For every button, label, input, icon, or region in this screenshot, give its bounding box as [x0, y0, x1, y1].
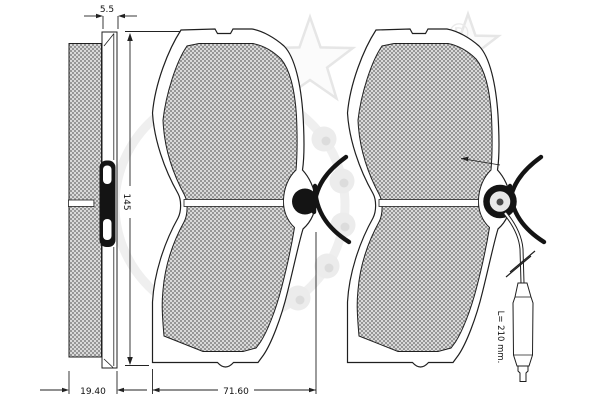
side-friction-groove	[68, 200, 94, 207]
dimension-label-71-60: 71.60	[223, 387, 249, 397]
right-pad-groove	[379, 200, 479, 207]
dimension-label-19-40: 19.40	[80, 387, 106, 397]
dimension-label-5-5: 5.5	[100, 5, 114, 15]
wear-sensor-center	[497, 199, 504, 206]
technical-drawing: ® 145 5.5 19.40 71.60	[0, 0, 600, 400]
pad-side-view	[68, 32, 117, 368]
sensor-wire-length-label: L= 210 mm.	[495, 311, 505, 364]
wear-sensor-connector	[513, 283, 533, 382]
cable-break-mark	[506, 256, 531, 277]
dimension-label-145: 145	[121, 193, 131, 210]
technical-drawing-page: ® 145 5.5 19.40 71.60	[0, 0, 600, 400]
side-spring-clip	[100, 161, 116, 248]
left-pad-groove	[184, 200, 284, 207]
dimension-plate-5-5	[84, 14, 137, 29]
brake-pad-front-right	[348, 29, 545, 382]
wear-sensor-cable	[505, 213, 535, 283]
